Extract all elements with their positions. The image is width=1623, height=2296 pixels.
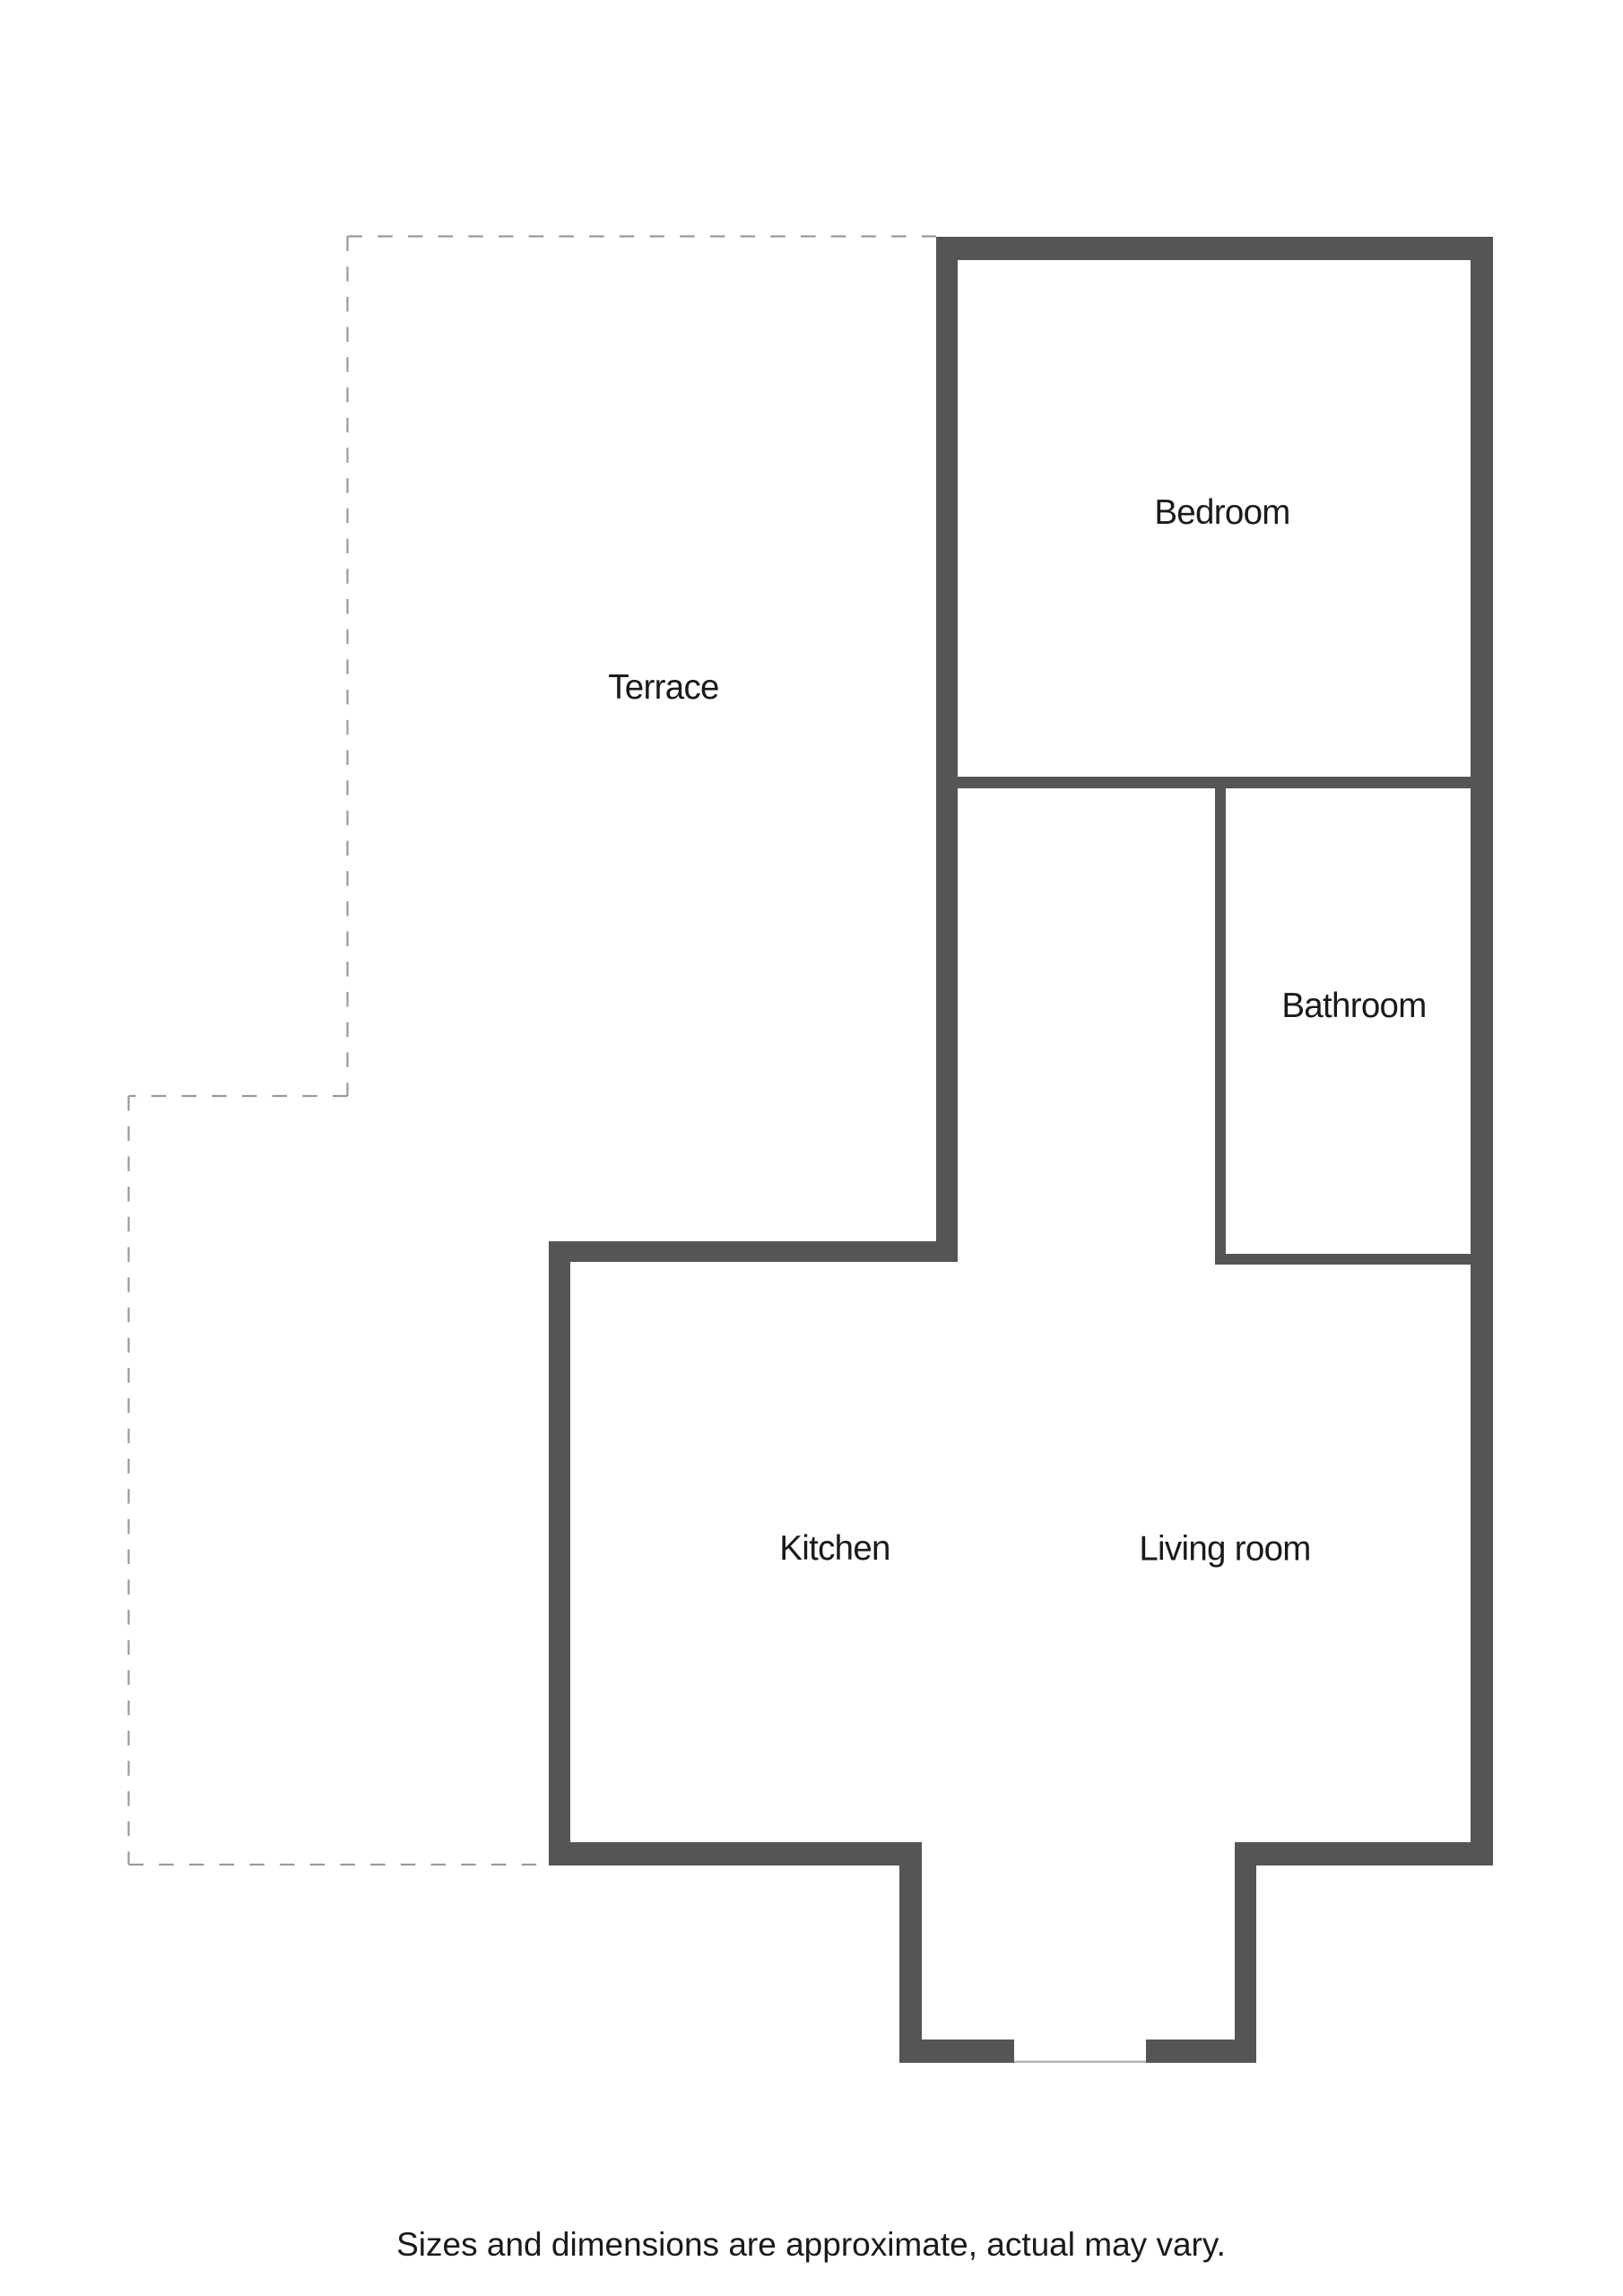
svg-text:Terrace: Terrace (608, 668, 718, 707)
svg-text:Living room: Living room (1139, 1530, 1310, 1569)
svg-text:Kitchen: Kitchen (779, 1529, 890, 1568)
svg-text:Bedroom: Bedroom (1154, 493, 1289, 532)
svg-text:Bathroom: Bathroom (1281, 987, 1426, 1025)
svg-text:Sizes and dimensions are appro: Sizes and dimensions are approximate, ac… (396, 2226, 1226, 2263)
